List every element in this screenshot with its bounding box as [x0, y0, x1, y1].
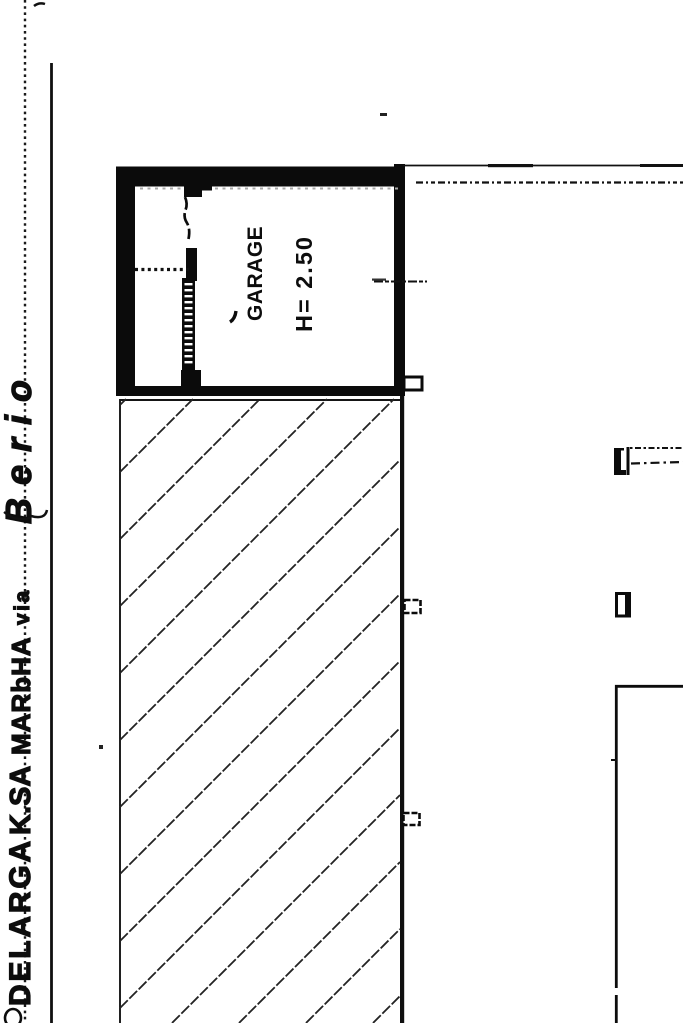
svg-text:DELARGA: DELARGA	[4, 838, 37, 1006]
svg-text:MARbHA: MARbHA	[6, 636, 36, 755]
svg-text:H= 2.50: H= 2.50	[291, 235, 317, 332]
svg-text:Berio: Berio	[0, 367, 39, 524]
svg-text:GARAGE: GARAGE	[244, 226, 267, 321]
svg-text:via: via	[11, 588, 34, 625]
svg-text:K.SA: K.SA	[5, 766, 37, 835]
